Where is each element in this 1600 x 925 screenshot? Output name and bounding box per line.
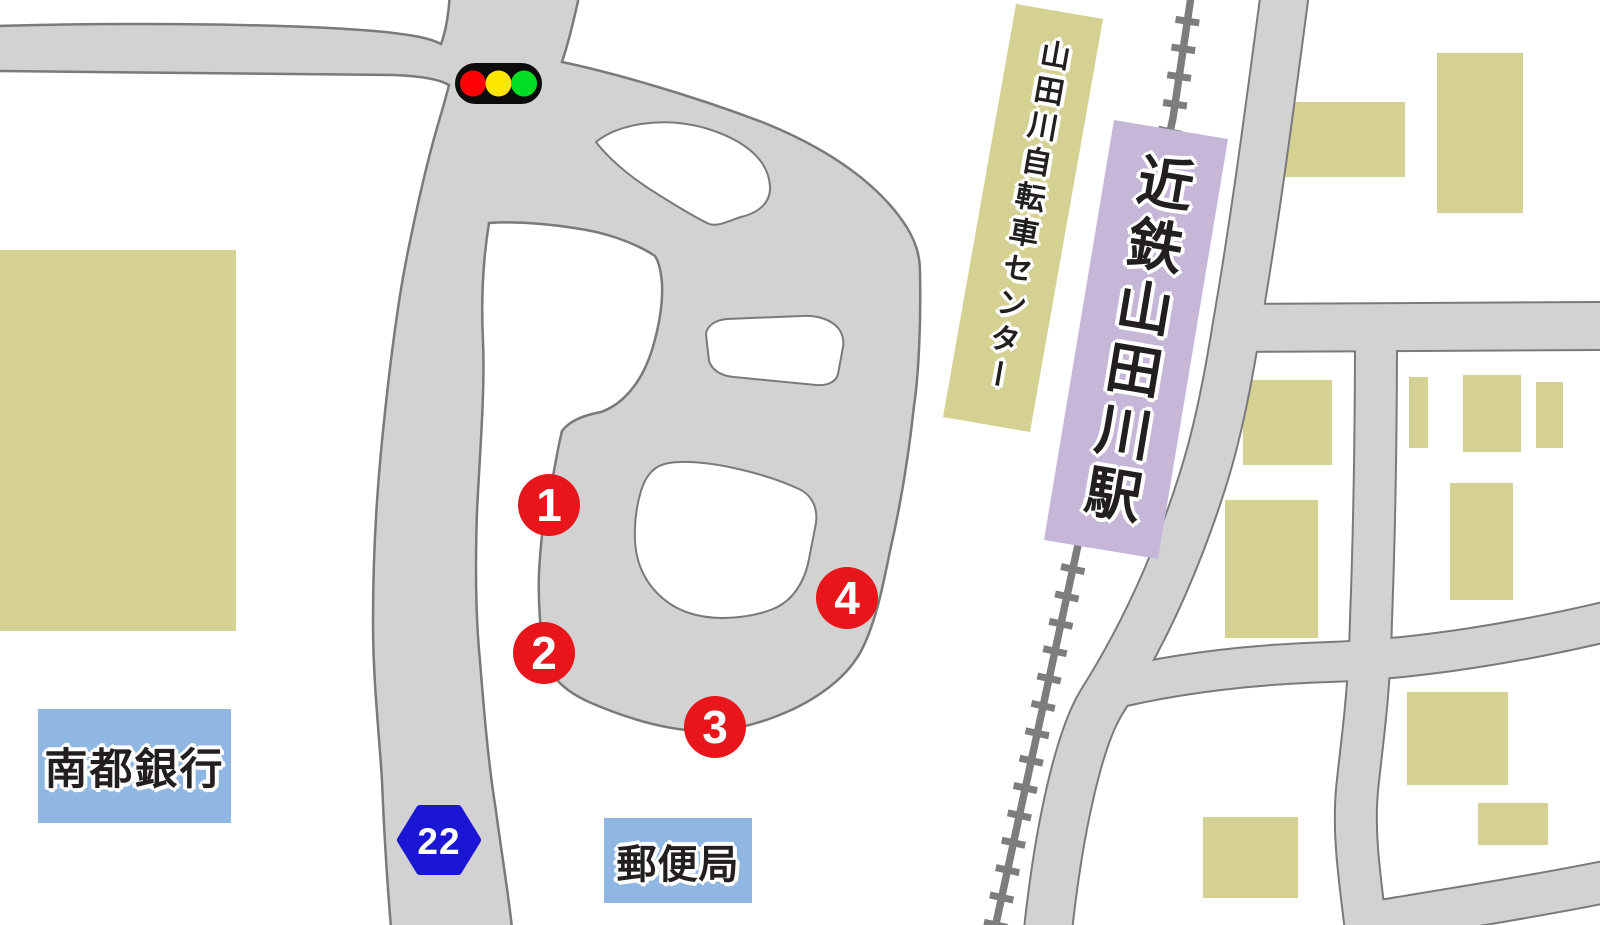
building-block [1407,692,1508,785]
bank-label: 南都銀行 [38,709,231,823]
building-block [1225,500,1318,638]
island-middle [706,316,843,385]
island-central [635,462,817,618]
building-block [1409,377,1428,448]
bus-stop-number: 2 [531,627,557,679]
bus-stop-marker-4: 4 [816,567,878,629]
bus-stop-number: 1 [536,479,562,531]
map-canvas: 22 1 2 3 4 南都銀行 郵便局 近鉄山田川駅 [0,0,1600,925]
building-block [1536,382,1563,448]
building-block [1450,483,1513,600]
bus-stop-marker-3: 3 [684,696,746,758]
building-block [1243,380,1332,465]
bus-stop-marker-2: 2 [513,622,575,684]
map-graphics: 22 1 2 3 4 [0,0,1600,925]
building-block [1203,817,1298,898]
bus-stop-number: 3 [702,701,728,753]
bus-stop-number: 4 [834,572,860,624]
route-number: 22 [417,821,460,862]
building-block [1283,102,1405,177]
post-office-label: 郵便局 [604,818,752,903]
building-block [1478,803,1548,845]
building-block [1437,53,1523,213]
building-block [0,250,236,631]
traffic-light-icon [455,63,542,104]
route-22-badge: 22 [401,809,477,871]
bus-stop-marker-1: 1 [518,474,580,536]
building-block [1463,375,1521,452]
